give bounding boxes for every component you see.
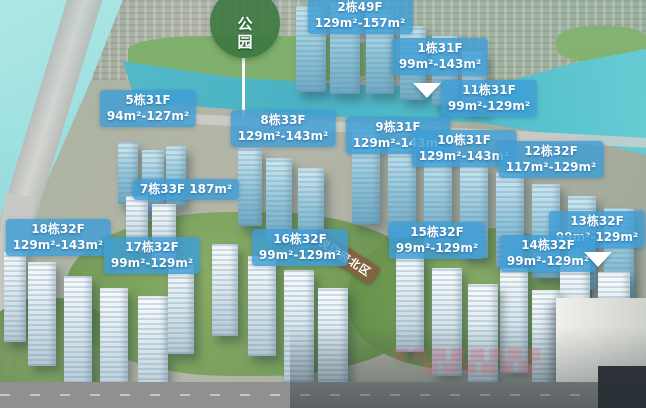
location-pointer-triangle-b13 [584, 252, 612, 267]
building-label-b5[interactable]: 5栋31F94m²-127m² [100, 90, 196, 127]
building-label-b17[interactable]: 17栋32F99m²-129m² [104, 237, 200, 274]
building-label-b11[interactable]: 11栋31F99m²-129m² [441, 80, 537, 117]
building-name: 14栋32F [507, 237, 589, 253]
tower [168, 262, 194, 354]
park-label: 公园 [235, 16, 256, 58]
building-area-range: 99m²-129m² [507, 253, 589, 269]
building-name: 11栋31F [448, 82, 530, 98]
building-name: 18栋32F [13, 221, 104, 237]
building-area-range: 117m²-129m² [506, 159, 597, 175]
building-area-range: 129m²-143m² [419, 148, 510, 164]
building-label-b7[interactable]: 7栋33F 187m² [133, 179, 239, 200]
tower [248, 256, 276, 356]
watermark [394, 348, 540, 361]
building-label-b15[interactable]: 15栋32F99m²-129m² [389, 222, 485, 259]
building-label-b12[interactable]: 12栋32F117m²-129m² [499, 141, 604, 178]
building-area-range: 94m²-127m² [107, 108, 189, 124]
building-name: 12栋32F [506, 143, 597, 159]
building-area-range: 99m²-143m² [399, 56, 481, 72]
building-name: 2栋49F [315, 0, 406, 15]
building-area-range: 99m²-129m² [259, 247, 341, 263]
tower [4, 250, 26, 342]
building-area-range: 129m²-157m² [315, 15, 406, 31]
building-name: 10栋31F [419, 132, 510, 148]
tower [28, 262, 56, 366]
watermark [424, 362, 534, 374]
building-area-range: 99m²-129m² [111, 255, 193, 271]
building-label-b1[interactable]: 1栋31F99m²-143m² [392, 38, 488, 75]
building-area-range: 129m²-143m² [13, 237, 104, 253]
building-label-b18[interactable]: 18栋32F129m²-143m² [6, 219, 111, 256]
building-label-b8[interactable]: 8栋33F129m²-143m² [231, 110, 336, 147]
building-name: 1栋31F [399, 40, 481, 56]
building-name: 8栋33F [238, 112, 329, 128]
building-name: 16栋32F [259, 231, 341, 247]
building-area-range: 99m²-129m² [396, 240, 478, 256]
tower [212, 244, 238, 336]
building-name: 17栋32F [111, 239, 193, 255]
building-name: 15栋32F [396, 224, 478, 240]
building-label-b16[interactable]: 16栋32F99m²-129m² [252, 229, 348, 266]
building-name: 7栋33F 187m² [140, 181, 232, 197]
location-pointer-triangle-b11 [413, 83, 441, 98]
aerial-map: 公园 2栋49F129m²-157m²1栋31F99m²-143m²11栋31F… [0, 0, 646, 408]
tower [238, 148, 262, 226]
park-pointer-line [242, 58, 245, 116]
building-area-range: 99m²-129m² [448, 98, 530, 114]
building-label-b2[interactable]: 2栋49F129m²-157m² [308, 0, 413, 34]
building-area-range: 129m²-143m² [238, 128, 329, 144]
building-name: 13栋32F [556, 213, 638, 229]
building-label-b14[interactable]: 14栋32F99m²-129m² [500, 235, 596, 272]
tower [64, 276, 92, 388]
building-name: 5栋31F [107, 92, 189, 108]
